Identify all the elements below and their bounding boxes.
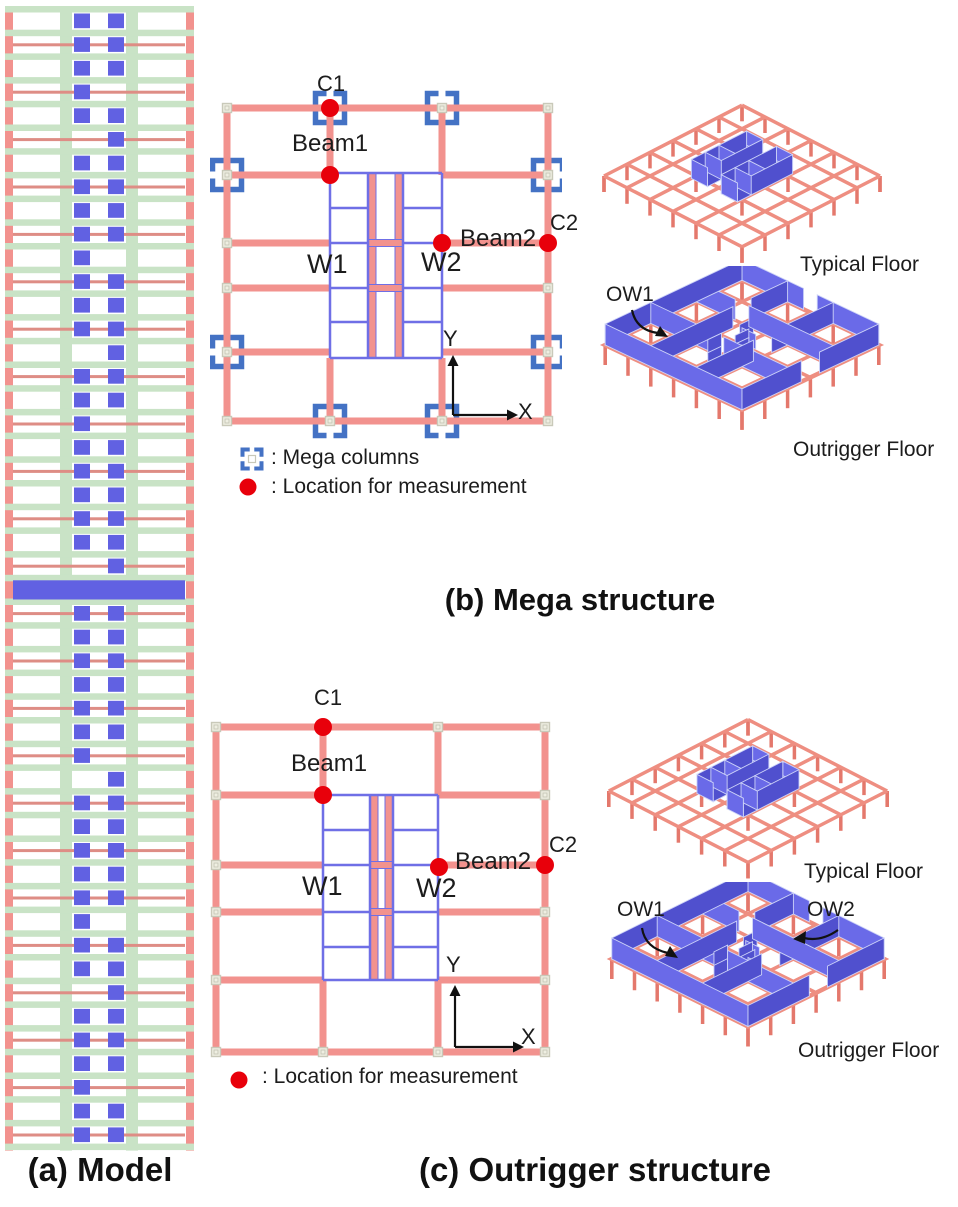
caption-panel-a: (a) Model xyxy=(0,1151,200,1189)
label-typical-floor-mega: Typical Floor xyxy=(800,254,919,276)
model-elevation xyxy=(2,2,197,1157)
label-beam2-outrigger: Beam2 xyxy=(455,849,531,874)
legend-measurement-text-mega: : Location for measurement xyxy=(271,476,527,498)
label-outrigger-floor-mega: Outrigger Floor xyxy=(793,439,934,461)
outrigger-typical-floor-3d xyxy=(592,700,942,882)
label-beam1-mega: Beam1 xyxy=(292,131,368,156)
label-ow1-mega: OW1 xyxy=(606,284,654,306)
caption-panel-c: (c) Outrigger structure xyxy=(345,1151,845,1189)
figure-canvas: C1 Beam1 Beam2 C2 W1 W2 Y X : Mega colum… xyxy=(0,0,958,1207)
label-c2-mega: C2 xyxy=(550,211,578,234)
label-c2-outrigger: C2 xyxy=(549,833,577,856)
label-beam1-outrigger: Beam1 xyxy=(291,751,367,776)
label-outrigger-floor-outrigger: Outrigger Floor xyxy=(798,1040,939,1062)
legend-measurement-text-outrigger: : Location for measurement xyxy=(262,1066,518,1088)
label-w1-mega: W1 xyxy=(307,250,348,278)
label-c1-outrigger: C1 xyxy=(314,686,342,709)
label-axis-y-mega: Y xyxy=(443,327,458,350)
caption-panel-b: (b) Mega structure xyxy=(355,582,805,618)
label-ow1-outrigger: OW1 xyxy=(617,899,665,921)
legend-mega-columns-text: : Mega columns xyxy=(271,447,419,469)
label-w2-mega: W2 xyxy=(421,248,462,276)
label-axis-y-outrigger: Y xyxy=(446,953,461,976)
label-axis-x-outrigger: X xyxy=(521,1025,536,1048)
mega-typical-floor-3d xyxy=(592,96,942,268)
label-beam2-mega: Beam2 xyxy=(460,226,536,251)
label-typical-floor-outrigger: Typical Floor xyxy=(804,861,923,883)
label-c1-mega: C1 xyxy=(317,72,345,95)
mega-structure-plan xyxy=(210,60,562,508)
label-w2-outrigger: W2 xyxy=(416,874,457,902)
label-w1-outrigger: W1 xyxy=(302,872,343,900)
outrigger-structure-plan xyxy=(210,680,562,1095)
label-axis-x-mega: X xyxy=(518,400,533,423)
label-ow2-outrigger: OW2 xyxy=(807,899,855,921)
